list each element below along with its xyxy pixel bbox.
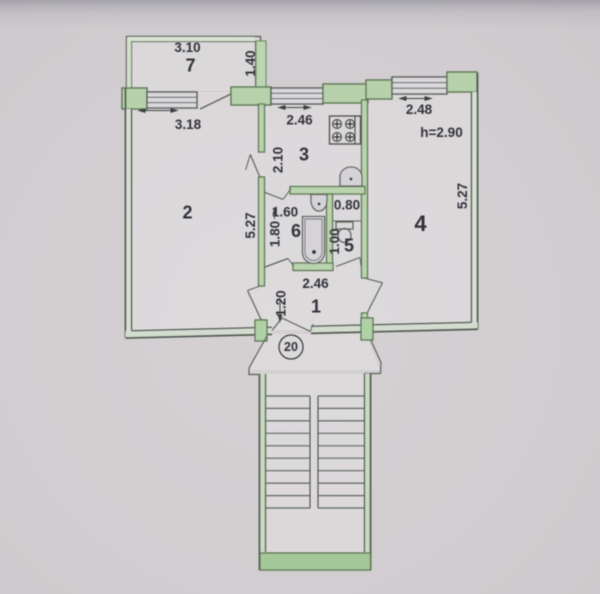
svg-text:4: 4 [414,211,427,236]
svg-text:1.40: 1.40 [243,50,258,76]
svg-text:6: 6 [291,221,301,241]
svg-text:1.80: 1.80 [268,221,283,247]
svg-text:2.46: 2.46 [302,276,329,291]
svg-text:20: 20 [284,340,298,354]
svg-text:5.27: 5.27 [455,183,470,209]
svg-text:1.20: 1.20 [274,290,289,316]
svg-text:2.48: 2.48 [406,102,433,117]
svg-text:h=2.90: h=2.90 [420,125,462,140]
svg-text:1.00: 1.00 [327,228,342,254]
svg-text:2.46: 2.46 [286,113,313,128]
svg-text:2: 2 [182,203,192,223]
svg-text:7: 7 [185,56,195,76]
svg-text:2.10: 2.10 [271,147,286,173]
svg-text:3: 3 [299,145,309,165]
svg-text:0.80: 0.80 [334,198,360,213]
svg-text:3.10: 3.10 [174,40,200,55]
svg-text:5.27: 5.27 [243,212,258,238]
svg-text:5: 5 [344,236,354,256]
svg-text:1: 1 [311,297,321,317]
svg-text:3.18: 3.18 [175,117,202,132]
